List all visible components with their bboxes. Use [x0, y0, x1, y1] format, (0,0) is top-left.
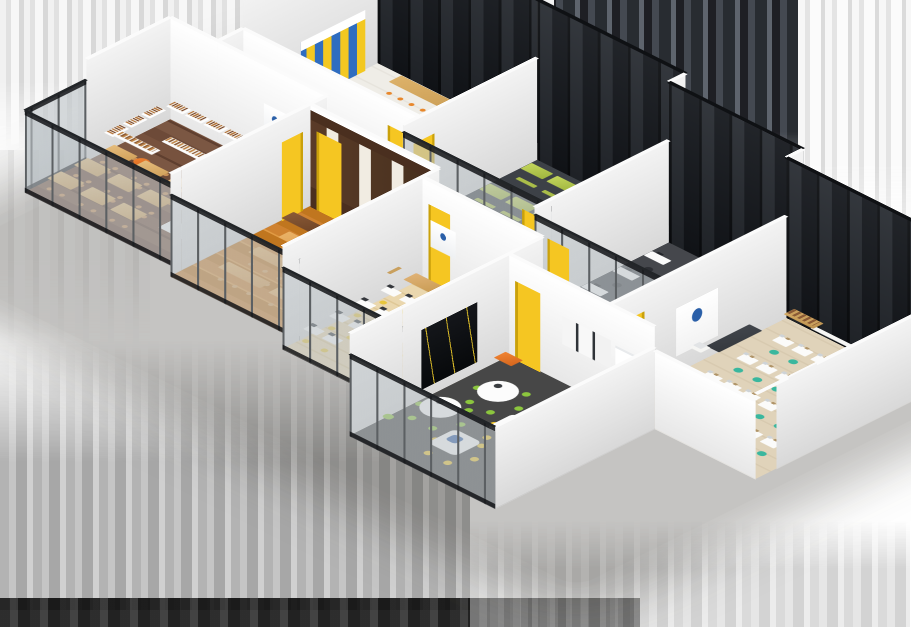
door — [282, 132, 303, 222]
school-floorplan-render — [0, 0, 911, 627]
door — [316, 131, 341, 223]
